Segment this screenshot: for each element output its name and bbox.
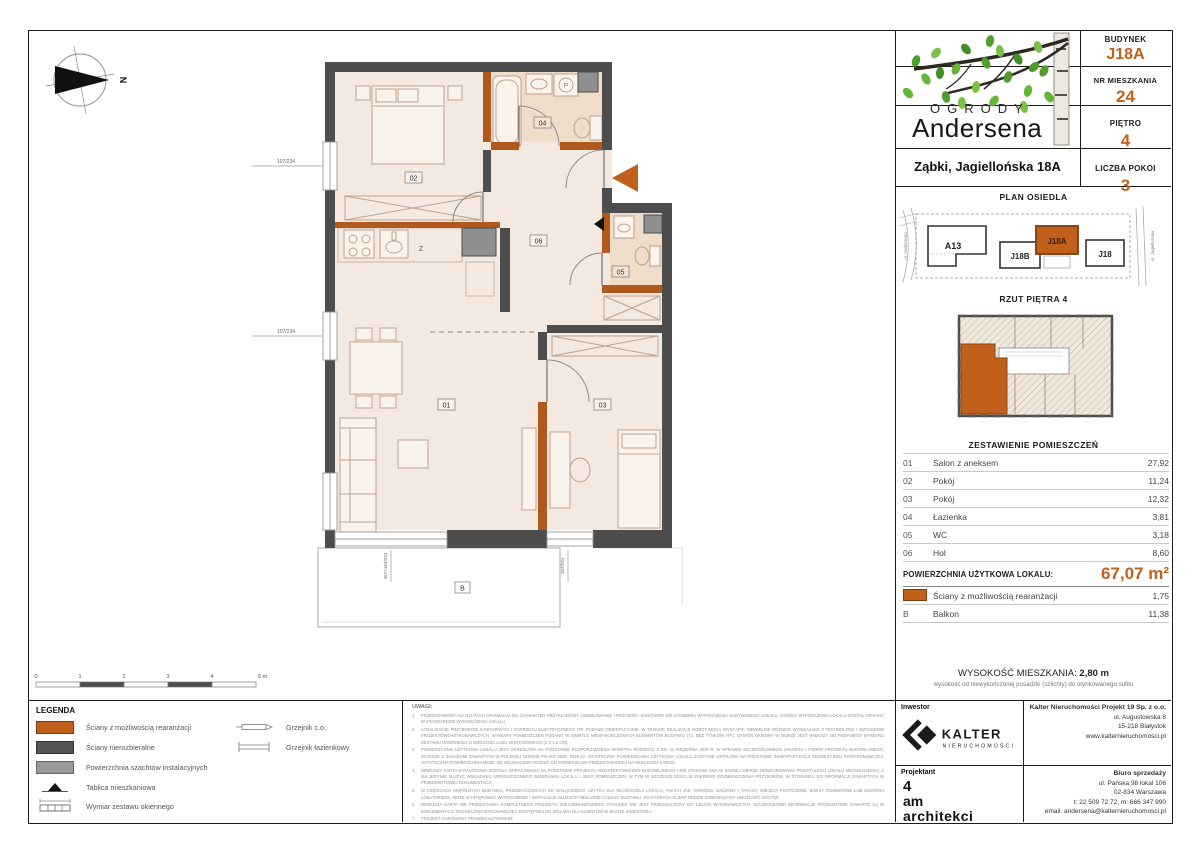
dim-left-mid: 107/234: [277, 329, 295, 335]
unit-info: BUDYNEK J18A NR MIESZKANIA 24 PIĘTRO 4 L…: [1080, 30, 1171, 194]
total-area-label: POWIERZCHNIA UŻYTKOWA LOKALU:: [903, 570, 1053, 579]
sales-office-label: Biuro sprzedaży: [1114, 770, 1167, 777]
balcony-row: B Balkon 11,38: [903, 605, 1169, 623]
designer-logo: 4 am architekci: [903, 779, 973, 823]
extra-area: 1,75: [1119, 591, 1169, 601]
dim-left-top: 107/234: [277, 159, 295, 165]
note-text: LOKALIZACJE PRZYBORÓW SANITARNYCH I OSPR…: [421, 727, 884, 746]
total-area-value: 67,07 m²: [1101, 564, 1169, 584]
radiator-icon: [236, 721, 276, 733]
floor-overview-map: [955, 306, 1120, 428]
legend-item-window-dim: Wymiar zestawu okiennego: [36, 798, 174, 814]
note-text: W CZĘŚCIACH WSPÓLNYCH BUDYNKU, PRZEZNACZ…: [421, 788, 884, 801]
legend-label: Wymiar zestawu okiennego: [86, 802, 174, 811]
note-text: PROJEKT CHRONIONY PRAWEM AUTORSKIM.: [421, 816, 514, 822]
note-item: 2.LOKALIZACJE PRZYBORÓW SANITARNYCH I OS…: [412, 727, 884, 746]
room-name: Pokój: [933, 476, 1119, 486]
note-item: 7.PROJEKT CHRONIONY PRAWEM AUTORSKIM.: [412, 816, 884, 822]
legend-label: Grzejnik łazienkowy: [286, 743, 350, 752]
info-label-pokoi: LICZBA POKOI: [1080, 164, 1171, 173]
room-area: 8,60: [1119, 548, 1169, 558]
balcony: [318, 548, 682, 627]
project-address: Ząbki, Jagiellońska 18A: [895, 159, 1080, 174]
board-arrow-icon: [36, 781, 74, 794]
info-label-pietro: PIĘTRO: [1080, 119, 1171, 128]
balcony-tag: B: [460, 586, 465, 593]
street-right-label: ul. Jagiellońska: [1150, 230, 1155, 261]
sales-line: 02-834 Warszawa: [1114, 789, 1166, 796]
investor-line: ul. Augustowska 8: [1114, 714, 1166, 721]
site-building-a13: A13: [945, 241, 962, 251]
window-dimension-icon: [36, 798, 74, 814]
legend-title: LEGENDA: [36, 706, 75, 715]
investor-label: Inwestor: [901, 704, 930, 711]
sales-phone[interactable]: t: 22 509 72 72, m: 666 347 990: [1074, 799, 1166, 806]
apartment-height: WYSOKOŚĆ MIESZKANIA: 2,80 m wysokość od …: [895, 668, 1172, 688]
room-no: 03: [903, 494, 933, 504]
sales-email[interactable]: email: andersena@kalternieruchomosci.pl: [1045, 808, 1166, 815]
note-item: 3.POWIERZCHNIA UŻYTKOWA LOKALU JEST OKRE…: [412, 747, 884, 766]
north-label: N: [118, 77, 128, 84]
note-item: 4.NINIEJSZA KARTA KATALOGOWA ZOSTAŁA OPR…: [412, 768, 884, 787]
washer-tag: P: [564, 83, 568, 90]
notes-list: 1.PRZEDSTAWIONA NA RZUTACH ARANŻACJA MA …: [412, 713, 884, 823]
kalter-logo: KALTER NIERUCHOMOŚCI: [902, 716, 1020, 754]
legend-item-solid-walls: Ściany nierozbieralne: [36, 741, 155, 754]
towel-radiator-icon: [236, 741, 276, 753]
note-number: 7.: [412, 816, 421, 822]
note-item: 1.PRZEDSTAWIONA NA RZUTACH ARANŻACJA MA …: [412, 713, 884, 726]
legend-orange-swatch-icon: [36, 721, 74, 734]
info-label-budynek: BUDYNEK: [1080, 35, 1171, 44]
legend-item-shafts: Powierzchnia szachtów instalacyjnych: [36, 761, 207, 774]
brand-logo: OGRODY Andersena: [896, 31, 1079, 147]
orange-swatch-icon: [903, 589, 927, 601]
room-tag-01: 01: [443, 403, 451, 410]
sales-office-details: Biuro sprzedaży ul. Pańska 98 lokal 106 …: [1028, 769, 1166, 817]
room-area: 3,18: [1119, 530, 1169, 540]
legend-label: Grzejnik c.o.: [286, 723, 326, 732]
legend-item-board: Tablica mieszkaniowa: [36, 781, 156, 794]
catalog-sheet: OGRODY Andersena Ząbki, Jagiellońska 18A…: [0, 0, 1200, 849]
room-name: Salon z aneksem: [933, 458, 1119, 468]
designer-logo-line: am: [903, 794, 973, 808]
rearrangeable-walls-row: Ściany z możliwością rearanżacji 1,75: [903, 587, 1169, 605]
room-name: Łazienka: [933, 512, 1119, 522]
note-number: 3.: [412, 747, 421, 766]
sales-line: ul. Pańska 98 lokal 106: [1099, 780, 1166, 787]
room-no: 01: [903, 458, 933, 468]
site-building-j18: J18: [1098, 250, 1112, 259]
legend-label: Tablica mieszkaniowa: [86, 783, 156, 792]
logo-line-2: Andersena: [912, 113, 1042, 144]
dim-bottom-right: 167/234: [560, 557, 565, 574]
apartment-floor-plan: 01 02 03 04 05 06 B Z P 107/234 107/234 …: [28, 30, 895, 702]
entrance-arrow-icon: [612, 164, 638, 192]
room-table: 01Salon z aneksem27,92 02Pokój11,24 03Po…: [903, 453, 1169, 623]
contacts-hdivider: [895, 765, 1171, 766]
room-no: 06: [903, 548, 933, 558]
dim-bottom-left: 267+163/234: [383, 552, 388, 579]
investor-website[interactable]: www.kalternieruchomosci.pl: [1086, 733, 1166, 740]
total-area-row: POWIERZCHNIA UŻYTKOWA LOKALU: 67,07 m²: [903, 562, 1169, 587]
legend-item-radiator: Grzejnik c.o.: [236, 721, 326, 733]
room-tag-02: 02: [410, 176, 418, 183]
note-number: 1.: [412, 713, 421, 726]
room-no: 02: [903, 476, 933, 486]
room-table-title: ZESTAWIENIE POMIESZCZEŃ: [895, 440, 1172, 450]
note-text: NINIEJSZA KARTA NIE PRZEDSTAWIA KOMPLETN…: [421, 802, 884, 815]
street-left-label: ul. Andersena: [903, 232, 908, 260]
note-text: NINIEJSZA KARTA KATALOGOWA ZOSTAŁA OPRAC…: [421, 768, 884, 787]
swatch-cell: [903, 589, 933, 603]
site-building-j18a: J18A: [1047, 237, 1066, 246]
height-value: 2,80 m: [1079, 668, 1109, 679]
table-row: 05WC3,18: [903, 526, 1169, 544]
info-value-budynek: J18A: [1080, 47, 1171, 63]
note-item: 5.W CZĘŚCIACH WSPÓLNYCH BUDYNKU, PRZEZNA…: [412, 788, 884, 801]
info-value-pietro: 4: [1080, 132, 1171, 149]
contacts-divider: [1023, 700, 1024, 822]
site-plan-map: A13 J18B J18A J18 ul. Andersena ul. Jagi…: [898, 204, 1170, 292]
notes-title: UWAGI:: [412, 704, 884, 710]
note-text: POWIERZCHNIA UŻYTKOWA LOKALU JEST OKREŚL…: [421, 747, 884, 766]
legend-dark-swatch-icon: [36, 741, 74, 754]
room-area: 3,81: [1119, 512, 1169, 522]
extra-name: Ściany z możliwością rearanżacji: [933, 591, 1119, 601]
room-area: 12,32: [1119, 494, 1169, 504]
info-value-nr: 24: [1080, 88, 1171, 105]
table-row: 03Pokój12,32: [903, 490, 1169, 508]
room-no: 04: [903, 512, 933, 522]
investor-name: Kalter Nieruchomości Projekt 19 Sp. z o.…: [1030, 704, 1166, 711]
investor-line: 15-218 Białystok: [1118, 723, 1166, 730]
room-name: WC: [933, 530, 1119, 540]
room-tag-05: 05: [617, 270, 625, 277]
room-name: Hol: [933, 548, 1119, 558]
height-note: wysokość od niewykończonej posadzki (szl…: [895, 681, 1172, 688]
table-row: 04Łazienka3,81: [903, 508, 1169, 526]
north-arrow: N: [46, 46, 128, 114]
table-row: 02Pokój11,24: [903, 472, 1169, 490]
site-plan-title: PLAN OSIEDLA: [895, 192, 1172, 202]
note-item: 6.NINIEJSZA KARTA NIE PRZEDSTAWIA KOMPLE…: [412, 802, 884, 815]
legend-item-rearrangeable: Ściany z możliwością rearanżacji: [36, 721, 191, 734]
investor-details: Kalter Nieruchomości Projekt 19 Sp. z o.…: [1028, 703, 1166, 741]
legend-label: Ściany nierozbieralne: [86, 743, 155, 752]
room-name: Pokój: [933, 494, 1119, 504]
room-tag-03: 03: [599, 403, 607, 410]
height-label: WYSOKOŚĆ MIESZKANIA:: [958, 668, 1077, 679]
designer-logo-line: architekci: [903, 809, 973, 823]
legend-divider: [402, 700, 403, 822]
note-number: 5.: [412, 788, 421, 801]
legend-label: Powierzchnia szachtów instalacyjnych: [86, 763, 207, 772]
notes-block: UWAGI: 1.PRZEDSTAWIONA NA RZUTACH ARANŻA…: [412, 704, 884, 824]
extra-area: 11,38: [1119, 609, 1169, 619]
note-number: 4.: [412, 768, 421, 787]
legend-item-towel-radiator: Grzejnik łazienkowy: [236, 741, 350, 753]
room-tag-04: 04: [539, 121, 547, 128]
info-label-nr: NR MIESZKANIA: [1080, 76, 1171, 85]
room-area: 27,92: [1119, 458, 1169, 468]
legend-label: Ściany z możliwością rearanżacji: [86, 723, 191, 732]
room-no: 05: [903, 530, 933, 540]
note-number: 2.: [412, 727, 421, 746]
legend-gray-swatch-icon: [36, 761, 74, 774]
room-tag-06: 06: [535, 239, 543, 246]
designer-logo-line: 4: [903, 779, 973, 794]
table-row: 01Salon z aneksem27,92: [903, 454, 1169, 472]
sink-tag: Z: [419, 246, 424, 253]
extra-marker: B: [903, 609, 933, 619]
note-text: PRZEDSTAWIONA NA RZUTACH ARANŻACJA MA CH…: [421, 713, 884, 726]
room-area: 11,24: [1119, 476, 1169, 486]
designer-label: Projektant: [901, 769, 935, 776]
kalter-logo-text: KALTER: [942, 726, 1002, 741]
kalter-logo-subtext: NIERUCHOMOŚCI: [942, 741, 1015, 749]
site-building-j18b: J18B: [1010, 252, 1029, 261]
table-row: 06Hol8,60: [903, 544, 1169, 562]
floor-overview-title: RZUT PIĘTRA 4: [895, 294, 1172, 304]
note-number: 6.: [412, 802, 421, 815]
extra-name: Balkon: [933, 609, 1119, 619]
